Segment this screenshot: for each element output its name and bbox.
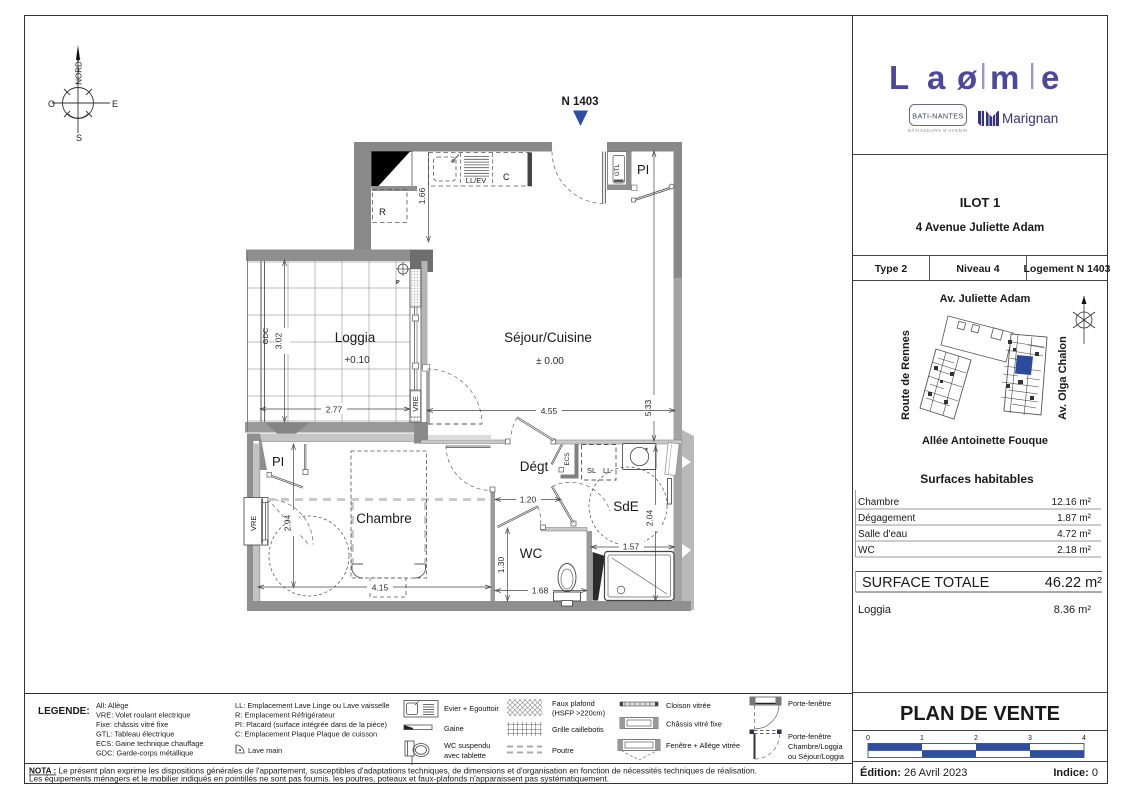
svg-text:O: O bbox=[48, 99, 55, 109]
svg-text:2.18 m²: 2.18 m² bbox=[1057, 545, 1092, 556]
svg-text:P: P bbox=[396, 280, 400, 286]
svg-text:Lave main: Lave main bbox=[248, 746, 282, 755]
svg-text:1.87 m²: 1.87 m² bbox=[1057, 513, 1092, 524]
svg-text:VRE: VRE bbox=[249, 516, 258, 531]
svg-text:2.94: 2.94 bbox=[283, 514, 293, 531]
svg-text:ECS: Gaine technique chauffage: ECS: Gaine technique chauffage bbox=[96, 739, 204, 748]
svg-text:+0.10: +0.10 bbox=[344, 355, 370, 366]
svg-text:R: R bbox=[379, 207, 386, 218]
svg-text:Surfaces habitables: Surfaces habitables bbox=[920, 472, 1034, 486]
svg-text:Édition: 26 Avril 2023: Édition: 26 Avril 2023 bbox=[860, 766, 967, 779]
svg-text:1.20: 1.20 bbox=[520, 495, 537, 505]
svg-text:Chambre: Chambre bbox=[858, 497, 900, 508]
svg-text:PLAN DE VENTE: PLAN DE VENTE bbox=[900, 703, 1060, 725]
svg-text:Logement N 1403: Logement N 1403 bbox=[1024, 263, 1111, 275]
svg-text:5.33: 5.33 bbox=[643, 399, 653, 416]
svg-text:NORD: NORD bbox=[75, 61, 84, 85]
svg-text:4.72 m²: 4.72 m² bbox=[1057, 529, 1092, 540]
svg-text:Gaine: Gaine bbox=[444, 724, 464, 733]
svg-text:GTL: GTL bbox=[614, 163, 621, 176]
svg-text:Marignan: Marignan bbox=[1002, 111, 1058, 126]
svg-text:3: 3 bbox=[1028, 735, 1032, 742]
svg-text:WC: WC bbox=[520, 546, 543, 561]
svg-text:1.68: 1.68 bbox=[532, 586, 549, 596]
svg-text:Cloison vitrée: Cloison vitrée bbox=[666, 701, 711, 710]
svg-text:Salle d'eau: Salle d'eau bbox=[858, 529, 907, 540]
svg-text:Loggia: Loggia bbox=[858, 604, 892, 616]
svg-text:BATI-NANTES: BATI-NANTES bbox=[912, 112, 963, 121]
svg-text:Niveau 4: Niveau 4 bbox=[956, 263, 999, 275]
svg-text:ILOT 1: ILOT 1 bbox=[960, 195, 1000, 210]
svg-text:Route de Rennes: Route de Rennes bbox=[900, 330, 912, 420]
svg-text:Fenêtre + Allège vitrée: Fenêtre + Allège vitrée bbox=[666, 741, 740, 750]
svg-text:2.77: 2.77 bbox=[326, 405, 343, 415]
svg-text:1.57: 1.57 bbox=[623, 542, 640, 552]
svg-text:S: S bbox=[76, 133, 82, 143]
svg-text:ECS: ECS bbox=[564, 453, 571, 466]
svg-text:m: m bbox=[990, 59, 1019, 96]
svg-text:Porte-fenêtre: Porte-fenêtre bbox=[788, 699, 831, 708]
svg-text:ø: ø bbox=[957, 59, 978, 96]
svg-text:WC: WC bbox=[858, 545, 875, 556]
svg-text:2.04: 2.04 bbox=[645, 509, 655, 526]
svg-text:E: E bbox=[112, 99, 118, 109]
svg-text:a: a bbox=[927, 59, 946, 96]
svg-text:LL: Emplacement Lave Linge ou: LL: Emplacement Lave Linge ou Lave vaiss… bbox=[235, 701, 389, 710]
svg-text:R: Emplacement Réfrigérateur: R: Emplacement Réfrigérateur bbox=[235, 711, 335, 720]
svg-text:WC suspendu: WC suspendu bbox=[444, 741, 490, 750]
svg-text:Indice: 0: Indice: 0 bbox=[1053, 767, 1098, 779]
svg-text:12.16 m²: 12.16 m² bbox=[1052, 497, 1092, 508]
svg-text:Av. Olga Chalon: Av. Olga Chalon bbox=[1057, 336, 1069, 420]
svg-text:PI: PI bbox=[637, 162, 649, 177]
svg-text:Evier + Egouttoir: Evier + Egouttoir bbox=[444, 704, 499, 713]
svg-text:ou Séjour/Loggia: ou Séjour/Loggia bbox=[788, 752, 845, 761]
svg-text:Grille caillebotis: Grille caillebotis bbox=[552, 725, 604, 734]
svg-text:PI: PI bbox=[272, 454, 284, 469]
svg-text:1.30: 1.30 bbox=[496, 556, 506, 573]
svg-text:Av. Juliette Adam: Av. Juliette Adam bbox=[940, 293, 1031, 305]
svg-text:GDC: GDC bbox=[261, 327, 270, 344]
svg-text:4 Avenue Juliette Adam: 4 Avenue Juliette Adam bbox=[916, 222, 1044, 234]
svg-text:Châssis vitré fixe: Châssis vitré fixe bbox=[666, 720, 722, 729]
svg-text:(HSFP >220cm): (HSFP >220cm) bbox=[552, 709, 605, 718]
svg-text:Dégagement: Dégagement bbox=[858, 513, 915, 524]
svg-text:GDC: Garde-corps métallique: GDC: Garde-corps métallique bbox=[96, 749, 193, 758]
svg-text:Allée Antoinette Fouque: Allée Antoinette Fouque bbox=[922, 435, 1048, 447]
svg-text:SURFACE TOTALE: SURFACE TOTALE bbox=[862, 575, 990, 591]
svg-text:Poutre: Poutre bbox=[552, 746, 574, 755]
svg-text:46.22 m²: 46.22 m² bbox=[1045, 575, 1102, 591]
svg-text:PI: Placard (surface intégrée: PI: Placard (surface intégrée dans de la… bbox=[235, 720, 387, 729]
svg-text:C: C bbox=[503, 172, 510, 182]
svg-text:4: 4 bbox=[1082, 735, 1086, 742]
svg-text:LL/EV: LL/EV bbox=[466, 176, 486, 185]
svg-text:Chambre: Chambre bbox=[356, 511, 412, 526]
svg-text:C: Emplacement Plaque Plaque d: C: Emplacement Plaque Plaque de cuisson bbox=[235, 730, 377, 739]
svg-text:Faux plafond: Faux plafond bbox=[552, 699, 595, 708]
svg-text:e: e bbox=[1041, 59, 1059, 96]
svg-text:1: 1 bbox=[920, 735, 924, 742]
svg-text:L: L bbox=[889, 59, 909, 96]
svg-text:VRE: Volet roulant electrique: VRE: Volet roulant electrique bbox=[96, 711, 191, 720]
svg-text:SdE: SdE bbox=[613, 499, 639, 514]
svg-text:GTL: Tableau électrique: GTL: Tableau électrique bbox=[96, 730, 174, 739]
svg-text:LL: LL bbox=[603, 466, 611, 475]
svg-text:4.55: 4.55 bbox=[541, 406, 558, 416]
svg-text:0: 0 bbox=[866, 735, 870, 742]
svg-text:Fixe: châssis vitré fixe: Fixe: châssis vitré fixe bbox=[96, 720, 168, 729]
svg-text:8.36 m²: 8.36 m² bbox=[1054, 604, 1092, 616]
svg-text:Séjour/Cuisine: Séjour/Cuisine bbox=[504, 330, 592, 345]
svg-text:± 0.00: ± 0.00 bbox=[536, 356, 564, 367]
svg-text:All: Allège: All: Allège bbox=[96, 701, 128, 710]
svg-text:avec tablette: avec tablette bbox=[444, 751, 486, 760]
svg-text:Chambre/Loggia: Chambre/Loggia bbox=[788, 742, 844, 751]
svg-text:Type 2: Type 2 bbox=[875, 263, 908, 275]
svg-text:N 1403: N 1403 bbox=[561, 96, 598, 108]
svg-text:BÂTISSEURS D'AVENIR: BÂTISSEURS D'AVENIR bbox=[908, 128, 968, 133]
svg-text:4.15: 4.15 bbox=[372, 583, 389, 593]
svg-text:VRE: VRE bbox=[411, 396, 420, 411]
svg-text:Porte-fenêtre: Porte-fenêtre bbox=[788, 732, 831, 741]
svg-text:Loggia: Loggia bbox=[335, 330, 376, 345]
svg-text:1.66: 1.66 bbox=[417, 187, 427, 204]
svg-text:Dégt: Dégt bbox=[520, 459, 549, 474]
svg-text:3.02: 3.02 bbox=[274, 332, 284, 349]
svg-text:Les équipements ménagers et le: Les équipements ménagers et le mobilier … bbox=[29, 775, 609, 784]
svg-text:LEGENDE:: LEGENDE: bbox=[38, 706, 90, 717]
svg-text:SL: SL bbox=[587, 466, 596, 475]
svg-text:2: 2 bbox=[974, 735, 978, 742]
